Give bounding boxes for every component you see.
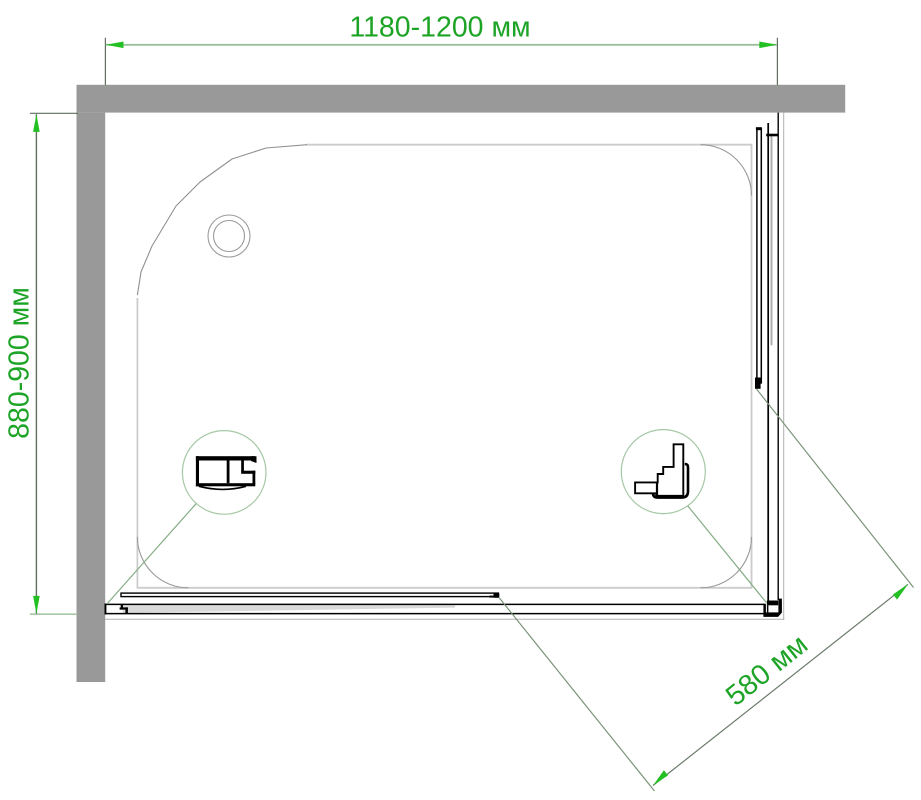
svg-text:1180-1200 мм: 1180-1200 мм: [349, 12, 530, 44]
svg-text:880-900 мм: 880-900 мм: [4, 287, 36, 439]
